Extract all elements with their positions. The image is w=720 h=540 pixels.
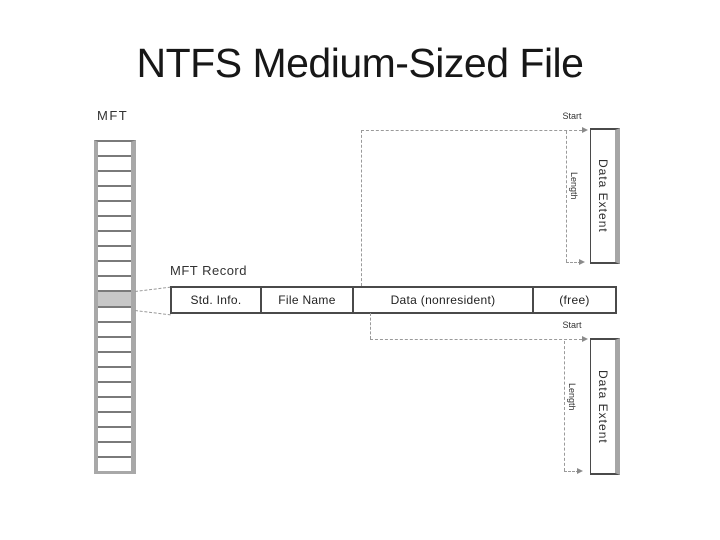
slide: NTFS Medium-Sized File MFT MFT Record St…: [0, 0, 720, 540]
connector2-arrow-icon: [582, 336, 588, 342]
data-extent-1-label: Data Extent: [596, 159, 610, 233]
mft-cell: [98, 187, 131, 202]
mft-cell: [98, 262, 131, 277]
data-extent-2-label: Data Extent: [596, 370, 610, 444]
extent1-length-line: [566, 131, 567, 262]
mft-cell-highlighted: [98, 292, 131, 307]
mft-cell: [98, 202, 131, 217]
mft-cell: [98, 232, 131, 247]
extent1-start-label: Start: [556, 111, 588, 121]
mft-cell: [98, 142, 131, 157]
mft-cell: [98, 277, 131, 292]
fan-line-bottom: [135, 310, 171, 315]
connector1-horizontal-line: [361, 130, 582, 131]
mft-cell: [98, 247, 131, 262]
mft-cell: [98, 428, 131, 443]
mft-record-row: Std. Info.File NameData (nonresident)(fr…: [170, 286, 617, 314]
mft-cell: [98, 308, 131, 323]
mft-column: [94, 140, 136, 474]
mft-cell: [98, 323, 131, 338]
data-extent-box-2: Data Extent: [590, 338, 620, 475]
mft-cell: [98, 172, 131, 187]
extent2-length-line: [564, 341, 565, 471]
mft-cell: [98, 157, 131, 172]
connector1-vertical-line: [361, 130, 362, 286]
mft-record-label: MFT Record: [170, 263, 247, 278]
mft-cell: [98, 458, 131, 471]
mft-cell: [98, 383, 131, 398]
record-cell: Std. Info.: [172, 288, 260, 312]
mft-cell: [98, 398, 131, 413]
mft-cell: [98, 368, 131, 383]
record-cell: (free): [532, 288, 615, 312]
mft-cell: [98, 217, 131, 232]
mft-label: MFT: [97, 108, 128, 123]
slide-title: NTFS Medium-Sized File: [0, 40, 720, 87]
extent1-length-arrow-icon: [579, 259, 585, 265]
connector2-vertical-line: [370, 313, 371, 339]
extent1-length-label: Length: [569, 172, 579, 200]
extent2-length-label: Length: [567, 383, 577, 411]
record-cell: Data (nonresident): [352, 288, 532, 312]
mft-cell: [98, 353, 131, 368]
extent2-length-arrow-icon: [577, 468, 583, 474]
extent2-start-label: Start: [556, 320, 588, 330]
mft-cell: [98, 338, 131, 353]
fan-line-top: [135, 287, 171, 292]
record-cell: File Name: [260, 288, 352, 312]
connector1-arrow-icon: [582, 127, 588, 133]
connector2-horizontal-line: [370, 339, 582, 340]
mft-cell: [98, 413, 131, 428]
mft-cell: [98, 443, 131, 458]
data-extent-box-1: Data Extent: [590, 128, 620, 264]
